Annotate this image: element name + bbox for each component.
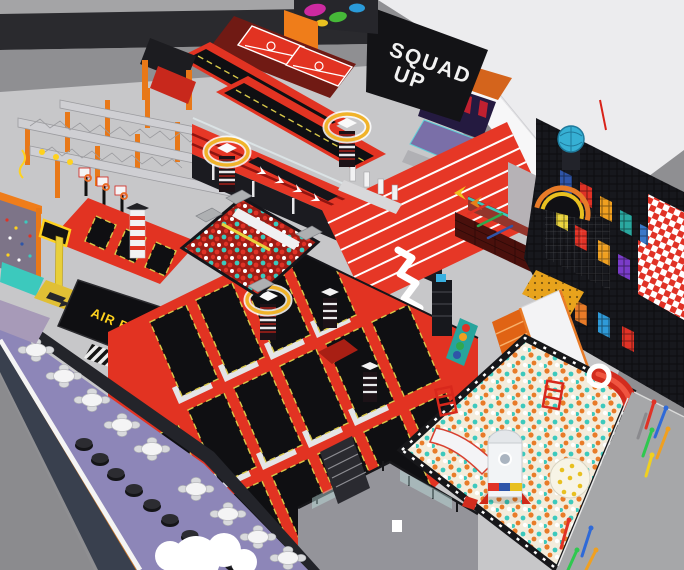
dark-frame-tower	[432, 274, 452, 336]
deck-white-post	[392, 520, 402, 532]
climbing-wall	[0, 192, 44, 296]
trampoline-park-render: SQUAD UP	[0, 0, 684, 570]
polka-dot-ball	[550, 458, 590, 498]
park-scene: SQUAD UP	[0, 0, 684, 570]
